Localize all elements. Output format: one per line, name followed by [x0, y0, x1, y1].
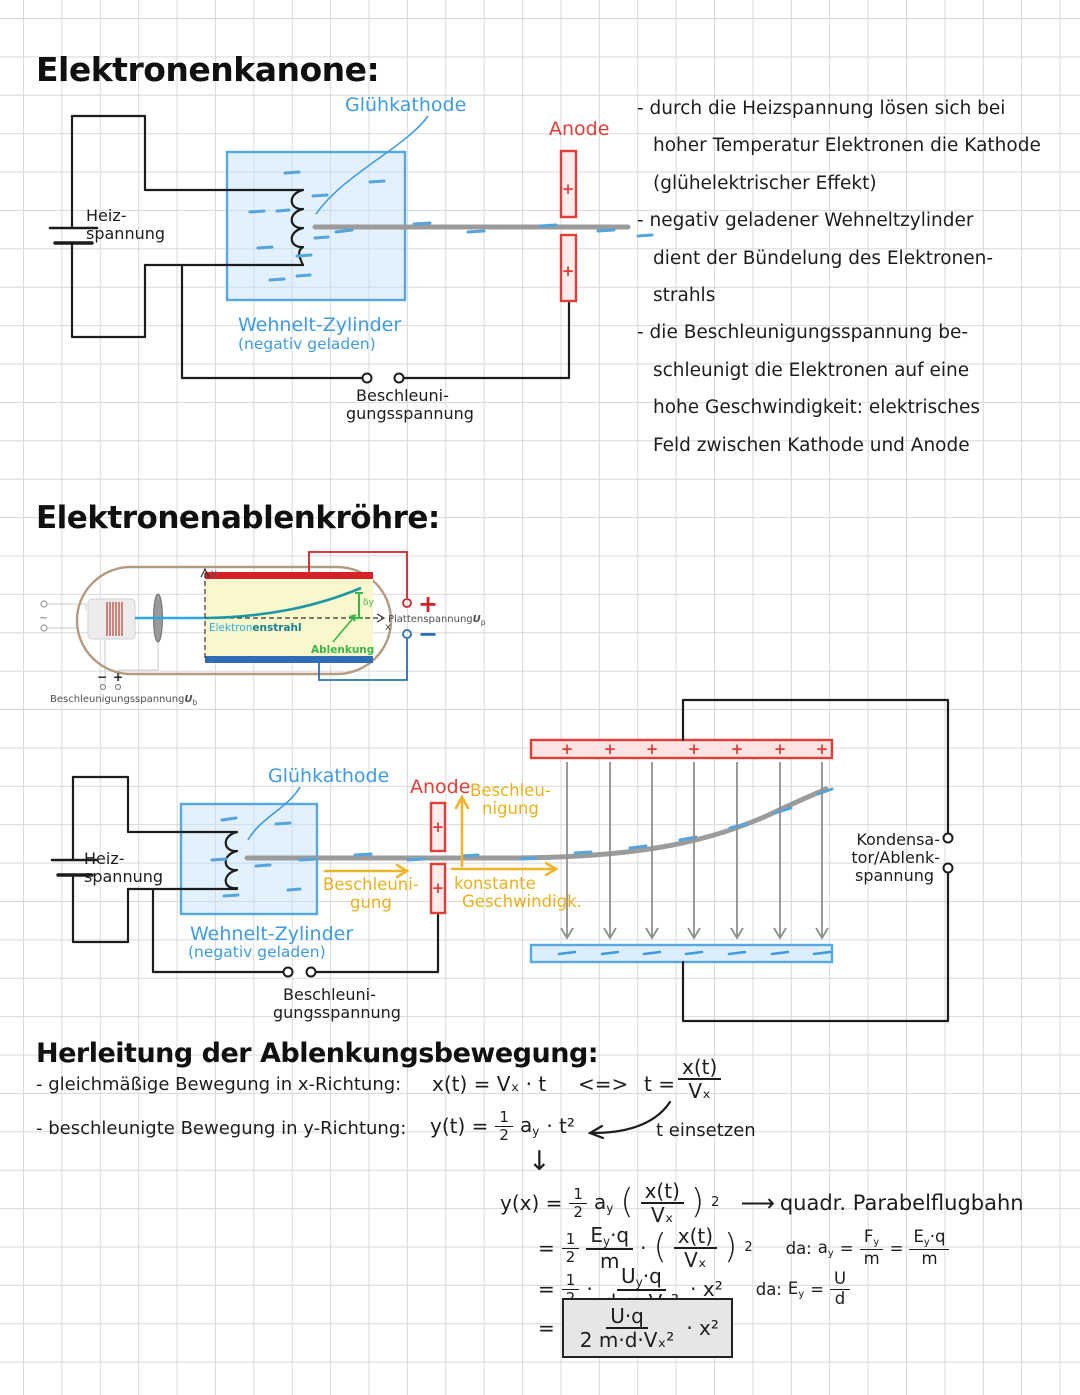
konstante-label-2: Geschwindigk.	[462, 892, 582, 911]
parabel-result-label: quadr. Parabelflugbahn	[780, 1191, 1024, 1215]
acceleration-voltage-terminals	[284, 968, 316, 977]
fraction-t-solution: x(t) Vₓ	[678, 1056, 721, 1102]
heizspannung-label-1: Heiz-	[86, 206, 127, 225]
equation-x-of-t: x(t) = Vₓ · t	[432, 1072, 546, 1096]
beschleunigungsspannung-label-1: Beschleuni-	[356, 386, 449, 405]
beschleunigungsspannung-label-2: gungsspannung	[346, 404, 474, 423]
close-paren: )	[724, 1234, 737, 1261]
acceleration-terminals: − +	[97, 670, 123, 690]
note-bullet-beschleunigungsspannung: - die Beschleunigungsspannung be- schleu…	[637, 314, 1077, 464]
beschleunigung-up-label-1: Beschleu-	[470, 781, 551, 800]
wehnelt-sublabel: (negativ geladen)	[188, 943, 326, 961]
section-title-herleitung: Herleitung der Ablenkungsbewegung:	[36, 1038, 598, 1069]
acceleration-voltage-terminals	[363, 374, 404, 383]
anode-plus-mark: +	[432, 818, 445, 836]
svg-text:+: +	[816, 740, 829, 758]
top-deflection-plate	[205, 572, 373, 579]
svg-text:+: +	[731, 740, 744, 758]
wehnelt-sublabel: (negativ geladen)	[238, 335, 376, 353]
open-paren: (	[620, 1189, 633, 1216]
iff-symbol: <=>	[578, 1072, 628, 1096]
note-bullet-heizspannung: - durch die Heizspannung lösen sich bei …	[637, 90, 1077, 202]
one-half-fraction: 12	[562, 1231, 580, 1265]
y-axis-label: y	[211, 568, 217, 579]
equation-y-of-t: y(t) = 12 ay · t²	[430, 1100, 575, 1152]
ac-tilde: ~	[39, 611, 48, 624]
gluehkathode-label: Glühkathode	[345, 94, 466, 116]
t-equals: t =	[644, 1072, 675, 1096]
negative-terminal	[403, 630, 411, 638]
open-paren: (	[653, 1234, 666, 1261]
side-note-Ey: da: Ey = Ud	[756, 1270, 850, 1307]
motion-x-label: - gleichmäßige Bewegung in x-Richtung:	[36, 1074, 401, 1095]
kanone-notes: - durch die Heizspannung lösen sich bei …	[637, 90, 1077, 464]
side-note-ay: da: ay = Fym = Ey·qm	[786, 1228, 950, 1268]
anode-plus-mark: +	[432, 879, 445, 897]
svg-text:+: +	[774, 740, 787, 758]
anode-plus-mark: +	[562, 180, 575, 198]
ablenkung-label: Ablenkung	[311, 644, 374, 656]
final-result-box: U·q2 m·d·Vₓ² · x²	[562, 1298, 733, 1358]
beschleunigungsspannung-label-1: Beschleuni-	[283, 985, 376, 1004]
fraction-xt-over-vx: x(t)Vₓ	[641, 1180, 684, 1226]
derivation-line-4: = U·q2 m·d·Vₓ² · x²	[538, 1300, 733, 1356]
long-arrow-icon: ⟶	[740, 1189, 772, 1217]
heizspannung-label-1: Heiz-	[84, 849, 125, 868]
motion-y-label: - beschleunigte Bewegung in y-Richtung:	[36, 1118, 406, 1139]
konstante-label-1: konstante	[454, 874, 536, 893]
one-half-fraction: 12	[495, 1109, 513, 1143]
down-arrow-icon: ↓	[528, 1146, 551, 1177]
wehnelt-label: Wehnelt-Zylinder	[238, 314, 401, 336]
capacitor-voltage-terminals	[944, 834, 953, 873]
beschleunigung-right-label-2: gung	[350, 893, 392, 912]
top-capacitor-plate	[531, 740, 832, 758]
electric-field-arrows	[561, 762, 828, 938]
svg-text:+: +	[688, 740, 701, 758]
fraction-Uq: U·q2 m·d·Vₓ²	[576, 1305, 679, 1351]
a-y-term: ay	[594, 1190, 613, 1216]
plus-mark: +	[113, 670, 123, 684]
kondensator-label-2: tor/Ablenk-	[851, 848, 940, 867]
one-half-fraction: 12	[569, 1186, 587, 1220]
kondensator-label-3: spannung	[855, 866, 934, 885]
gluehkathode-label: Glühkathode	[268, 765, 389, 787]
bottom-deflection-plate	[205, 656, 373, 663]
heizspannung-label-2: spannung	[86, 224, 165, 243]
beschleunigung-right-label-1: Beschleuni-	[323, 875, 419, 894]
svg-text:+: +	[646, 740, 659, 758]
delta-y-label: δy	[363, 598, 375, 608]
a-y-term: ay	[520, 1113, 539, 1139]
anode-label: Anode	[410, 776, 470, 798]
elektronenstrahl-label: Elektronenstrahl	[209, 622, 302, 634]
elektronenkanone-diagram: + + Glühkathode Anode Heiz- spannung Weh…	[0, 88, 640, 440]
ablenkroehre-printed-figure: y x δy Ablenkung Elektronenstrahl + − Pl…	[28, 540, 498, 712]
note-bullet-wehneltzylinder: - negativ geladener Wehneltzylinder dien…	[637, 202, 1077, 314]
electron-gun	[88, 599, 135, 639]
ablenkroehre-hand-diagram: + + Anode Glühkathode Heiz- spannung Weh…	[0, 690, 1080, 1030]
positive-terminal	[403, 599, 411, 607]
anode-plus-mark: +	[562, 262, 575, 280]
section-title-elektronenkanone: Elektronenkanone:	[36, 50, 379, 89]
section-title-elektronenablenkroehre: Elektronenablenkröhre:	[36, 500, 440, 536]
heizspannung-label-2: spannung	[84, 867, 163, 886]
heater-supply-terminals: ~	[39, 601, 48, 631]
wehnelt-label: Wehnelt-Zylinder	[190, 923, 353, 945]
t-einsetzen-note: t einsetzen	[656, 1120, 756, 1141]
beschleunigung-up-label-2: nigung	[482, 799, 539, 818]
close-paren: )	[691, 1189, 704, 1216]
svg-text:+: +	[604, 740, 617, 758]
minus-mark: −	[97, 670, 107, 684]
beschleunigungsspannung-label-2: gungsspannung	[273, 1003, 401, 1022]
svg-text:+: +	[561, 740, 574, 758]
physics-notes-page: Elektronenkanone:	[0, 0, 1080, 1395]
anode-label: Anode	[549, 118, 609, 140]
kondensator-label-1: Kondensa-	[856, 830, 940, 849]
bottom-capacitor-plate	[531, 945, 832, 962]
